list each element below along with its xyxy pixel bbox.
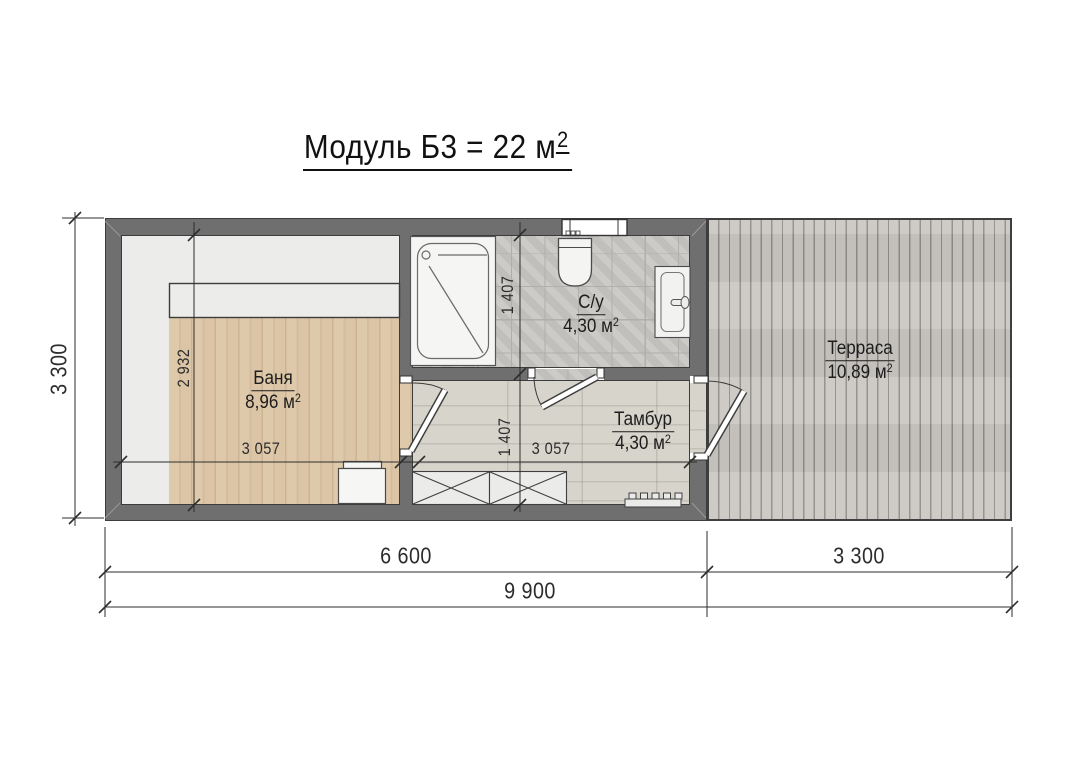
window	[562, 220, 627, 236]
dim-su-height: 1 407	[498, 276, 518, 315]
shoe-grate	[625, 493, 682, 507]
wall-corner-miters	[105, 221, 706, 518]
room-label-banya: Баня 8,96 м2	[245, 368, 301, 414]
room-label-terrace: Терраса 10,89 м2	[825, 338, 894, 384]
terrace-area: 10,89 м2	[827, 362, 892, 384]
banya-door-arc	[412, 383, 445, 390]
banya-area: 8,96 м2	[245, 392, 301, 414]
dim-tambur-width: 3 057	[532, 439, 571, 459]
su-area: 4,30 м2	[563, 316, 619, 338]
dim-tambur-height: 1 407	[495, 418, 515, 457]
dim-banya-height: 2 932	[174, 349, 194, 388]
tambur-area: 4,30 м2	[615, 433, 671, 455]
su-name: С/у	[576, 292, 605, 315]
banya-name: Баня	[251, 368, 294, 391]
terrace-door-arc	[708, 381, 744, 391]
su-door-arc	[534, 377, 542, 407]
wardrobe-units	[413, 472, 567, 505]
toilet	[559, 239, 592, 287]
room-label-tambur: Тамбур 4,30 м2	[612, 409, 674, 455]
dim-overall-height: 3 300	[46, 343, 73, 395]
plan-linework	[0, 0, 1086, 768]
floor-plan-canvas: Модуль Б3 = 22 м2	[0, 0, 1086, 768]
terrace-name: Терраса	[825, 338, 894, 361]
sauna-bench	[170, 284, 400, 318]
tambur-name: Тамбур	[612, 409, 674, 432]
door-leaves	[411, 377, 744, 455]
dim-banya-width: 3 057	[242, 439, 281, 459]
dim-total-width: 9 900	[504, 578, 556, 605]
dim-module-width: 6 600	[380, 543, 432, 570]
sink	[655, 267, 690, 338]
shower-tray	[411, 237, 496, 366]
room-outlines	[106, 219, 707, 521]
dim-terrace-width: 3 300	[833, 543, 885, 570]
room-label-su: С/у 4,30 м2	[563, 292, 619, 338]
sauna-stove	[339, 462, 386, 504]
